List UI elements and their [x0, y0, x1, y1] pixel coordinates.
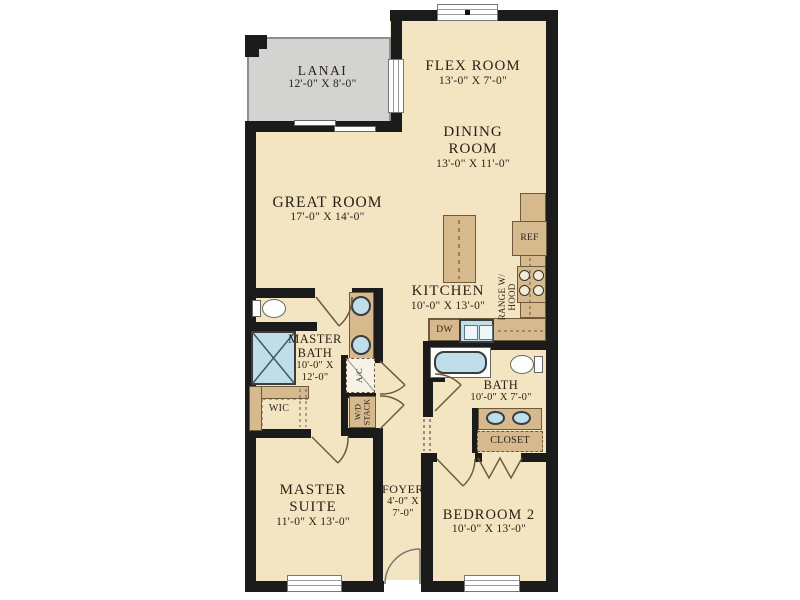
label-wic: WIC	[260, 404, 298, 414]
window-mullion	[465, 10, 470, 15]
room-label-master-bath: MASTER BATH 10'-0" X 12'-0"	[284, 332, 346, 384]
sink-basin	[479, 325, 493, 340]
burner-icon	[533, 285, 544, 296]
label-range: RANGE W/ HOOD	[497, 257, 519, 337]
vanity-sink	[351, 335, 371, 355]
room-label-dining: DINING ROOM 13'-0" X 11'-0"	[418, 124, 528, 170]
sliding-door-panel	[334, 126, 376, 132]
toilet-bowl	[262, 299, 286, 318]
exterior-mask	[245, 0, 390, 37]
label-ac: A/C	[355, 361, 366, 390]
window	[464, 575, 520, 592]
vanity-sink	[486, 411, 505, 425]
vanity-sink	[512, 411, 531, 425]
wall	[373, 288, 383, 363]
room-label-flex: FLEX ROOM 13'-0" X 7'-0"	[408, 58, 538, 88]
kitchen-island	[443, 215, 476, 283]
wall	[423, 453, 437, 462]
window	[388, 59, 404, 113]
sliding-door-panel	[294, 120, 336, 126]
floor-plan: LANAI 12'-0" X 8'-0" FLEX ROOM 13'-0" X …	[0, 0, 800, 600]
wall	[546, 10, 558, 592]
label-closet: CLOSET	[479, 436, 541, 446]
toilet-tank	[252, 300, 261, 317]
kitchen-sink	[459, 319, 494, 343]
window	[437, 4, 498, 21]
toilet-bowl	[510, 355, 534, 374]
burner-icon	[519, 270, 530, 281]
wall-lanai-corner	[245, 35, 259, 57]
window	[287, 575, 342, 592]
label-ref: REF	[513, 234, 546, 244]
bathtub	[434, 351, 487, 374]
room-label-bath: BATH 10'-0" X 7'-0"	[458, 378, 544, 404]
room-label-great: GREAT ROOM 17'-0" X 14'-0"	[255, 194, 400, 224]
sink-basin	[464, 325, 478, 340]
room-label-bedroom2: BEDROOM 2 10'-0" X 13'-0"	[432, 507, 546, 536]
label-wd-stack: W/D STACK	[354, 395, 372, 430]
wall	[475, 453, 482, 462]
burner-icon	[533, 270, 544, 281]
burner-icon	[519, 285, 530, 296]
room-label-kitchen: KITCHEN 10'-0" X 13'-0"	[399, 283, 497, 313]
wall	[521, 453, 546, 462]
wall	[245, 322, 317, 331]
front-door-opening	[384, 580, 421, 593]
vanity-sink	[351, 296, 371, 316]
room-label-lanai: LANAI 12'-0" X 8'-0"	[265, 63, 380, 91]
room-label-foyer: FOYER 4'-0" X 7'-0"	[377, 483, 429, 520]
room-label-master-suite: MASTER SUITE 11'-0" X 13'-0"	[252, 482, 374, 528]
wall	[245, 288, 315, 298]
label-dw: DW	[429, 326, 460, 336]
toilet-tank	[534, 356, 543, 373]
